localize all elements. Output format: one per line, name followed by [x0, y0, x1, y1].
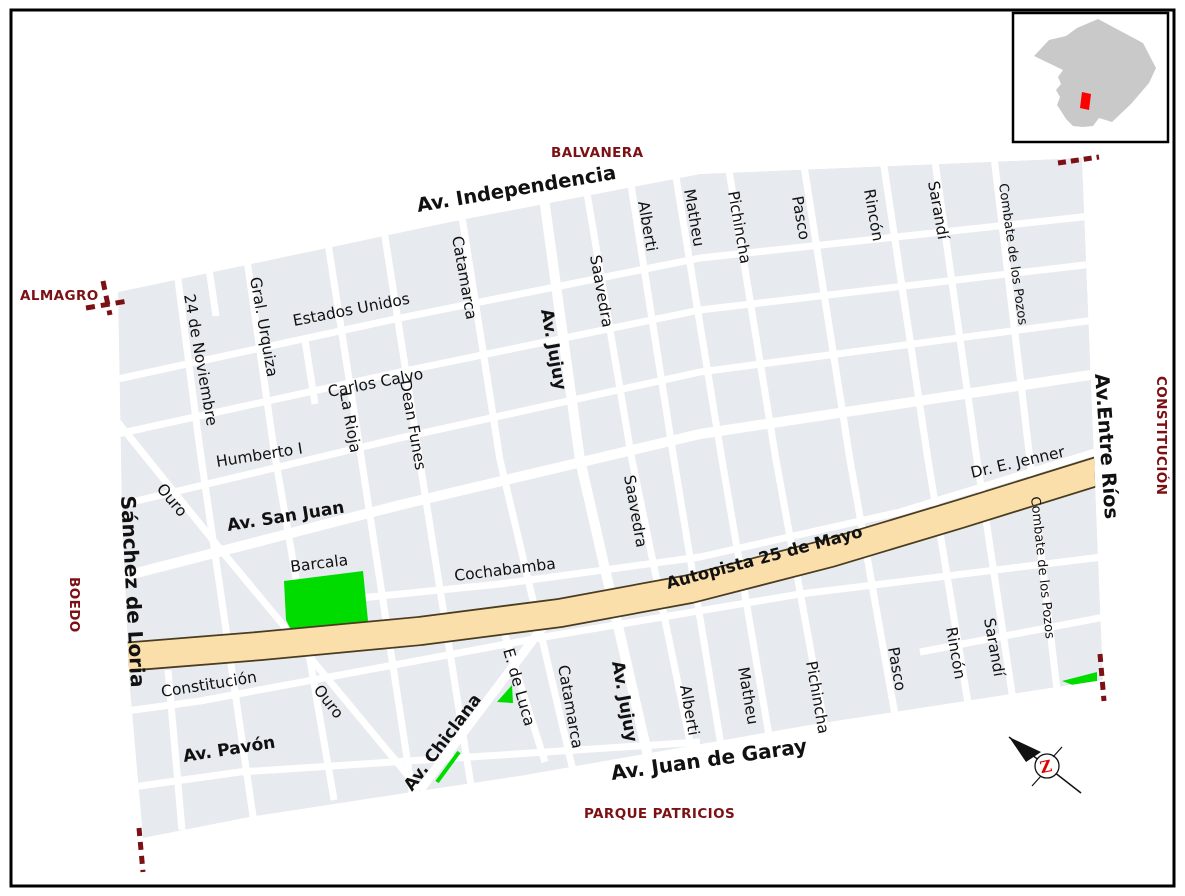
- label-boedo: BOEDO: [66, 577, 82, 633]
- boundary-dash-southwest: [139, 828, 143, 872]
- boundary-dash-northeast: [1058, 157, 1099, 163]
- map-body: [90, 140, 1110, 838]
- label-parque-patricios: PARQUE PATRICIOS: [584, 806, 735, 822]
- map-page: Av. Independencia Estados Unidos Carlos …: [0, 0, 1185, 896]
- locator-inset: [1013, 13, 1168, 142]
- barrio-map: Av. Independencia Estados Unidos Carlos …: [0, 0, 1185, 896]
- compass-tick-ne: [1053, 747, 1062, 757]
- label-constitucion-barrio: CONSTITUCIÓN: [1153, 376, 1171, 495]
- label-balvanera: BALVANERA: [551, 145, 644, 161]
- compass: Z: [1009, 737, 1081, 793]
- boundary-dash-almagro-v: [103, 281, 110, 315]
- label-almagro: ALMAGRO: [20, 288, 99, 304]
- compass-tick-sw: [1032, 776, 1041, 786]
